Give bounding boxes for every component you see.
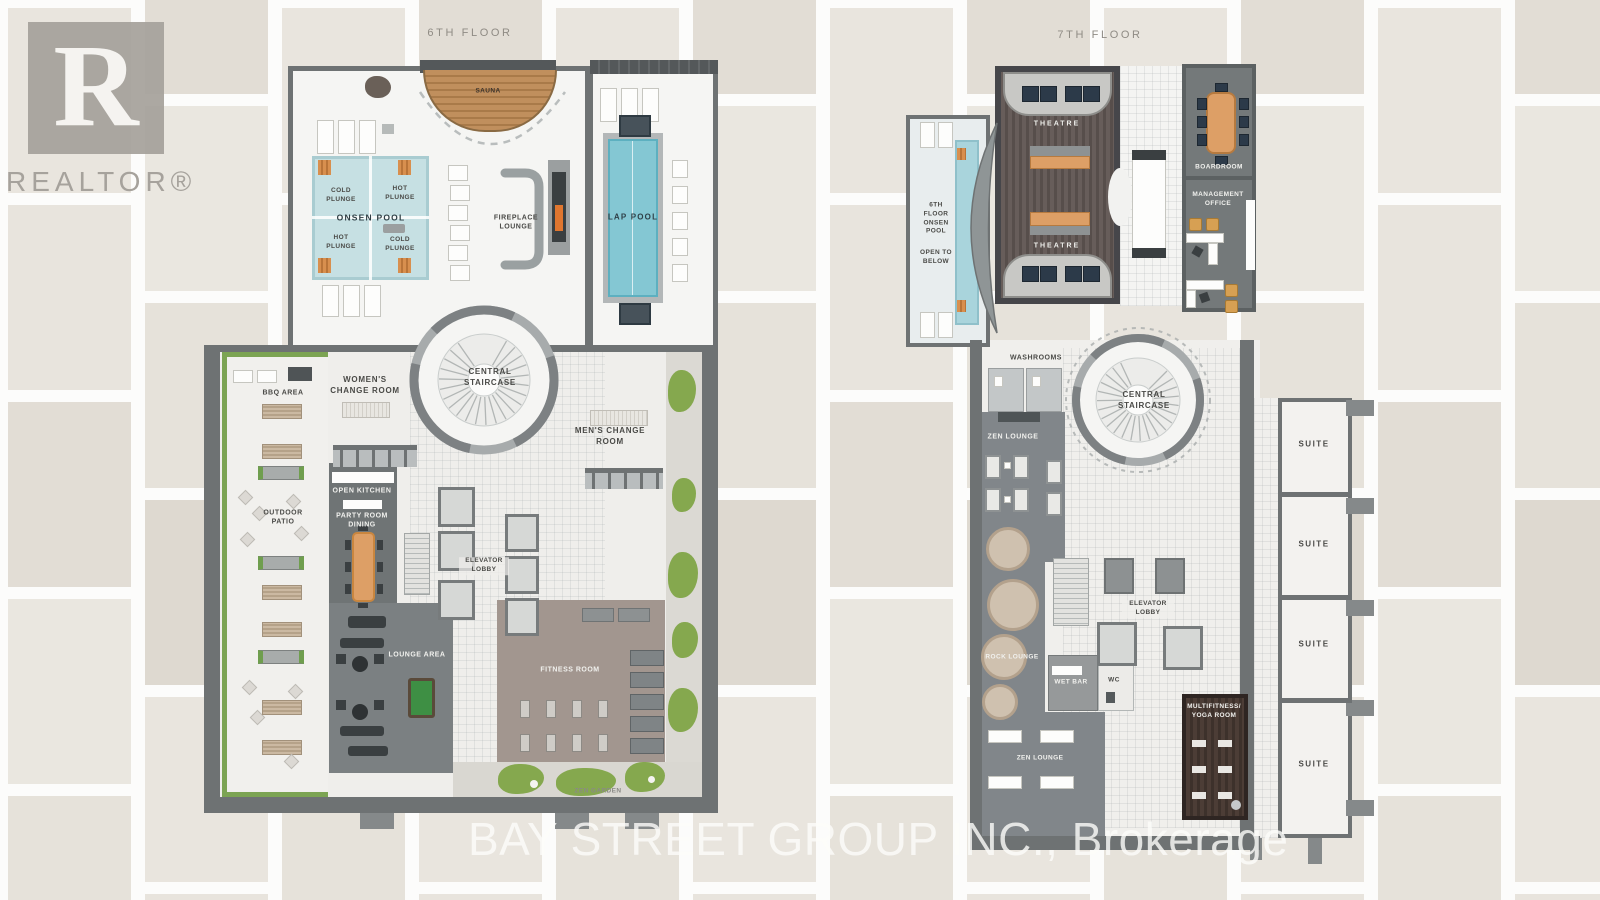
office-divider-wall xyxy=(1182,176,1256,180)
rock-feature xyxy=(987,579,1039,631)
gym-machine xyxy=(598,734,608,752)
suite-partition xyxy=(1278,698,1352,703)
hall-bench xyxy=(1132,158,1166,250)
shower-stub xyxy=(608,473,611,489)
theatre-seat xyxy=(1065,86,1082,102)
pebble xyxy=(648,776,655,783)
boardroom-chair xyxy=(1197,98,1207,110)
fireplace-lounge-label: FIREPLACE LOUNGE xyxy=(483,214,549,233)
spa-chair xyxy=(448,245,468,261)
patio-table xyxy=(262,404,302,419)
planter-edge xyxy=(222,352,227,797)
round-table xyxy=(352,656,368,672)
pool-corner-pad xyxy=(318,160,331,175)
yoga-mat xyxy=(1192,766,1206,773)
balcony-tab xyxy=(1346,800,1374,816)
dining-chair xyxy=(377,540,383,550)
bench xyxy=(348,746,388,756)
wall xyxy=(970,340,982,850)
spa-chair xyxy=(448,205,468,221)
pool-chair xyxy=(672,212,688,230)
zen-chair xyxy=(1046,460,1062,484)
pool-chair xyxy=(672,160,688,178)
hot-tub xyxy=(619,115,651,137)
suite-corridor xyxy=(1254,398,1280,838)
weight-bench xyxy=(630,650,664,666)
hot-tub xyxy=(619,303,651,325)
shower-stub xyxy=(388,450,391,467)
zen-chair xyxy=(1013,455,1029,479)
floor6-title: 6TH FLOOR xyxy=(427,27,512,39)
gym-machine xyxy=(572,700,582,718)
yoga-mat xyxy=(1218,766,1232,773)
spa-chair xyxy=(450,265,470,281)
hot-plunge-label: HOT PLUNGE xyxy=(321,234,361,252)
floor7-title: 7TH FLOOR xyxy=(1057,29,1142,41)
dining-table xyxy=(352,532,375,602)
lap-pool-roof-band xyxy=(590,60,718,74)
wall xyxy=(702,345,718,797)
realtor-logo-icon: R xyxy=(28,22,164,154)
elevator-shaft xyxy=(505,514,539,552)
zen-chair xyxy=(1013,488,1029,512)
hot-plunge-label: HOT PLUNGE xyxy=(380,185,420,203)
party-room-label: PARTY ROOM DINING xyxy=(333,512,391,531)
elevator-lobby-7f-label: ELEVATOR LOBBY xyxy=(1122,600,1174,618)
side-table xyxy=(382,124,394,134)
armchair xyxy=(374,654,384,664)
theatre-seat xyxy=(1083,86,1100,102)
boardroom-chair xyxy=(1197,116,1207,128)
balcony-tab xyxy=(1346,600,1374,616)
armchair xyxy=(336,654,346,664)
kitchen-counter xyxy=(332,472,394,483)
dining-chair xyxy=(345,562,351,572)
yoga-mat xyxy=(1192,740,1206,747)
wc-label: WC xyxy=(1108,677,1120,686)
lounger xyxy=(359,120,376,154)
balcony-tab xyxy=(1346,498,1374,514)
zen-lounge-lower-label: ZEN LOUNGE xyxy=(1017,755,1064,764)
outdoor-patio-label: OUTDOOR PATIO xyxy=(254,509,312,528)
dining-chair xyxy=(377,562,383,572)
patio-lounger xyxy=(233,370,253,383)
fireplace-flame xyxy=(555,205,563,231)
armchair xyxy=(374,700,384,710)
washroom-stall xyxy=(1026,368,1062,412)
bbq-counter xyxy=(258,556,304,570)
fitness-room-label: FITNESS ROOM xyxy=(540,665,599,674)
office-chair-orange xyxy=(1206,218,1219,231)
sofa xyxy=(340,726,384,736)
pool-chair xyxy=(672,186,688,204)
gym-machine xyxy=(520,734,530,752)
bbq-counter xyxy=(258,650,304,664)
suite-label: SUITE xyxy=(1298,440,1329,451)
weight-bench xyxy=(630,694,664,710)
boardroom-chair xyxy=(1239,116,1249,128)
wall xyxy=(204,797,718,813)
washrooms-label: WASHROOMS xyxy=(1010,353,1062,362)
onsen-below-label: 6TH FLOOR ONSEN POOL xyxy=(918,201,954,236)
zen-garden-label: ZEN GARDEN xyxy=(575,788,622,797)
exercise-ball xyxy=(1231,800,1241,810)
pool-chair xyxy=(672,238,688,256)
office-desk xyxy=(1186,280,1224,290)
theatre-console xyxy=(1030,226,1090,235)
theatre-seat xyxy=(1083,266,1100,282)
patio-lounger xyxy=(257,370,277,383)
boardroom-chair xyxy=(1239,134,1249,146)
wall xyxy=(204,345,220,813)
pool-chair xyxy=(672,264,688,282)
elevator-shaft xyxy=(438,580,475,620)
realtor-wordmark: REALTOR® xyxy=(6,166,196,198)
balcony-tab xyxy=(1346,400,1374,416)
balcony-tab xyxy=(360,813,394,829)
rock-decor xyxy=(365,76,391,98)
change-room-bench xyxy=(342,402,390,418)
realtor-logo-letter: R xyxy=(53,27,138,145)
hall-bench-end xyxy=(1132,248,1166,258)
elevator-shaft xyxy=(1097,622,1137,666)
shower-stub xyxy=(656,473,659,489)
treadmill xyxy=(618,608,650,622)
office-chair-orange xyxy=(1225,284,1238,297)
shower-stub xyxy=(592,473,595,489)
boardroom-chair xyxy=(1215,83,1228,92)
spa-chair xyxy=(450,225,470,241)
mens-change-room-label: MEN'S CHANGE ROOM xyxy=(570,426,650,448)
pool-step xyxy=(383,224,405,233)
toilet xyxy=(1106,692,1115,703)
shower-stub xyxy=(356,450,359,467)
zen-lounger xyxy=(988,730,1022,743)
zen-lounger xyxy=(988,776,1022,789)
yoga-mat xyxy=(1218,792,1232,799)
lap-pool-label: LAP POOL xyxy=(608,213,658,224)
shower-stub xyxy=(624,473,627,489)
boardroom-table xyxy=(1206,92,1236,154)
zen-lounge-upper-label: ZEN LOUNGE xyxy=(988,432,1039,441)
yoga-mat xyxy=(1192,792,1206,799)
wet-bar-label: WET BAR xyxy=(1054,679,1087,688)
elevator-shaft xyxy=(1163,626,1203,670)
rock-feature xyxy=(982,684,1018,720)
patio-table xyxy=(262,700,302,715)
change-room-bench xyxy=(590,410,648,426)
theatre-seat xyxy=(1040,266,1057,282)
bbq-counter xyxy=(258,466,304,480)
stairwell xyxy=(404,533,430,595)
cold-plunge-label: COLD PLUNGE xyxy=(380,236,420,254)
theatre-seat xyxy=(1065,266,1082,282)
elevator-shaft xyxy=(438,487,475,527)
bbq-grill xyxy=(288,367,312,381)
zen-chair xyxy=(985,488,1001,512)
pool-corner-pad xyxy=(398,258,411,273)
suite-label: SUITE xyxy=(1298,640,1329,651)
pool-corner-pad xyxy=(318,258,331,273)
theatre-lower-label: THEATRE xyxy=(1034,241,1081,250)
balcony-tab xyxy=(1308,838,1322,864)
zen-chair xyxy=(1046,492,1062,516)
gym-machine xyxy=(546,734,556,752)
office-chair-orange xyxy=(1189,218,1202,231)
gym-machine xyxy=(546,700,556,718)
kitchen-island xyxy=(343,500,382,509)
wet-bar-counter xyxy=(1052,666,1082,675)
theatre-seat xyxy=(1022,86,1039,102)
dining-chair xyxy=(345,540,351,550)
dining-chair xyxy=(377,584,383,594)
lounger xyxy=(920,122,935,148)
boardroom-label: BOARDROOM xyxy=(1195,164,1243,173)
billiards-table xyxy=(408,678,435,718)
floorplan-render: R REALTOR® 6TH FLOOR SAUNA COLD PLUNGE H… xyxy=(0,0,1600,900)
round-table xyxy=(352,704,368,720)
boardroom-chair xyxy=(1197,134,1207,146)
elevator-lobby-6f-label: ELEVATOR LOBBY xyxy=(459,557,509,575)
spa-chair xyxy=(450,185,470,201)
suite-label: SUITE xyxy=(1298,540,1329,551)
sofa xyxy=(340,638,384,648)
toilet xyxy=(994,376,1003,387)
office-desk xyxy=(1186,290,1196,308)
bbq-area-label: BBQ AREA xyxy=(262,388,303,397)
cold-plunge-label: COLD PLUNGE xyxy=(321,187,361,205)
lounger xyxy=(600,88,617,122)
patio-table xyxy=(262,444,302,459)
theatre-bench xyxy=(1030,212,1090,226)
patio-table xyxy=(262,622,302,637)
boardroom-chair xyxy=(1239,98,1249,110)
curved-screen-notch xyxy=(1108,168,1132,226)
stairwell-7f xyxy=(1053,558,1089,626)
lounger xyxy=(338,120,355,154)
shower-stub xyxy=(640,473,643,489)
onsen-pool-label: ONSEN POOL xyxy=(337,212,406,223)
open-kitchen-label: OPEN KITCHEN xyxy=(333,486,392,495)
sofa xyxy=(348,616,386,628)
office-shelf xyxy=(1246,200,1255,270)
side-table xyxy=(1004,462,1011,469)
hall-bench-end xyxy=(1132,150,1166,160)
suite-label: SUITE xyxy=(1298,760,1329,771)
planter-edge xyxy=(222,352,328,357)
suites-block xyxy=(1278,398,1352,838)
office-desk xyxy=(1186,233,1224,243)
dining-chair xyxy=(345,584,351,594)
brokerage-watermark: BAY STREET GROUP INC., Brokerage xyxy=(468,812,1208,866)
lounger xyxy=(322,285,339,317)
central-staircase-7f-label: CENTRAL STAIRCASE xyxy=(1109,390,1179,412)
zen-lounger xyxy=(1040,776,1074,789)
gym-machine xyxy=(598,700,608,718)
spa-chair xyxy=(448,165,468,181)
pool-corner-pad xyxy=(398,160,411,175)
rock-feature xyxy=(986,527,1030,571)
yoga-room-label: MULTIFITNESS/ YOGA ROOM xyxy=(1184,703,1244,721)
shower-stub xyxy=(372,450,375,467)
suite-partition xyxy=(1278,492,1352,497)
theatre-upper-label: THEATRE xyxy=(1034,119,1081,128)
central-staircase-6f-label: CENTRAL STAIRCASE xyxy=(453,367,527,389)
armchair xyxy=(336,700,346,710)
rock-lounge-label: ROCK LOUNGE xyxy=(985,654,1038,663)
treadmill xyxy=(582,608,614,622)
elevator-shaft xyxy=(505,556,539,594)
suite-partition xyxy=(1278,595,1352,600)
toilet xyxy=(1032,376,1041,387)
zen-chair xyxy=(985,455,1001,479)
theatre-console xyxy=(1030,146,1090,156)
lounger xyxy=(364,285,381,317)
shower-stub xyxy=(340,450,343,467)
zen-lounger xyxy=(1040,730,1074,743)
console-shelf xyxy=(998,412,1040,422)
theatre-bench xyxy=(1030,156,1090,169)
elevator-shaft xyxy=(505,598,539,636)
lounger xyxy=(317,120,334,154)
sauna-label: SAUNA xyxy=(475,88,500,97)
weight-bench xyxy=(630,738,664,754)
dining-chair xyxy=(358,603,368,608)
patio-table xyxy=(262,585,302,600)
open-to-below-label: OPEN TO BELOW xyxy=(918,249,954,267)
service-shaft xyxy=(1104,558,1134,594)
theatre-seat xyxy=(1040,86,1057,102)
weight-bench xyxy=(630,716,664,732)
service-shaft xyxy=(1155,558,1185,594)
washroom-stall xyxy=(988,368,1024,412)
lounge-area-label: LOUNGE AREA xyxy=(389,650,446,659)
side-table xyxy=(1004,496,1011,503)
theatre-seat xyxy=(1022,266,1039,282)
weight-bench xyxy=(630,672,664,688)
management-office-label: MANAGEMENT OFFICE xyxy=(1186,191,1250,209)
pebble xyxy=(530,780,538,788)
planter-edge xyxy=(222,792,328,797)
lounger xyxy=(343,285,360,317)
office-desk xyxy=(1208,243,1218,265)
gym-machine xyxy=(520,700,530,718)
gym-machine xyxy=(572,734,582,752)
yoga-mat xyxy=(1218,740,1232,747)
patio-table xyxy=(262,740,302,755)
womens-change-room-label: WOMEN'S CHANGE ROOM xyxy=(323,375,407,397)
lounger xyxy=(920,312,935,338)
office-chair-orange xyxy=(1225,300,1238,313)
